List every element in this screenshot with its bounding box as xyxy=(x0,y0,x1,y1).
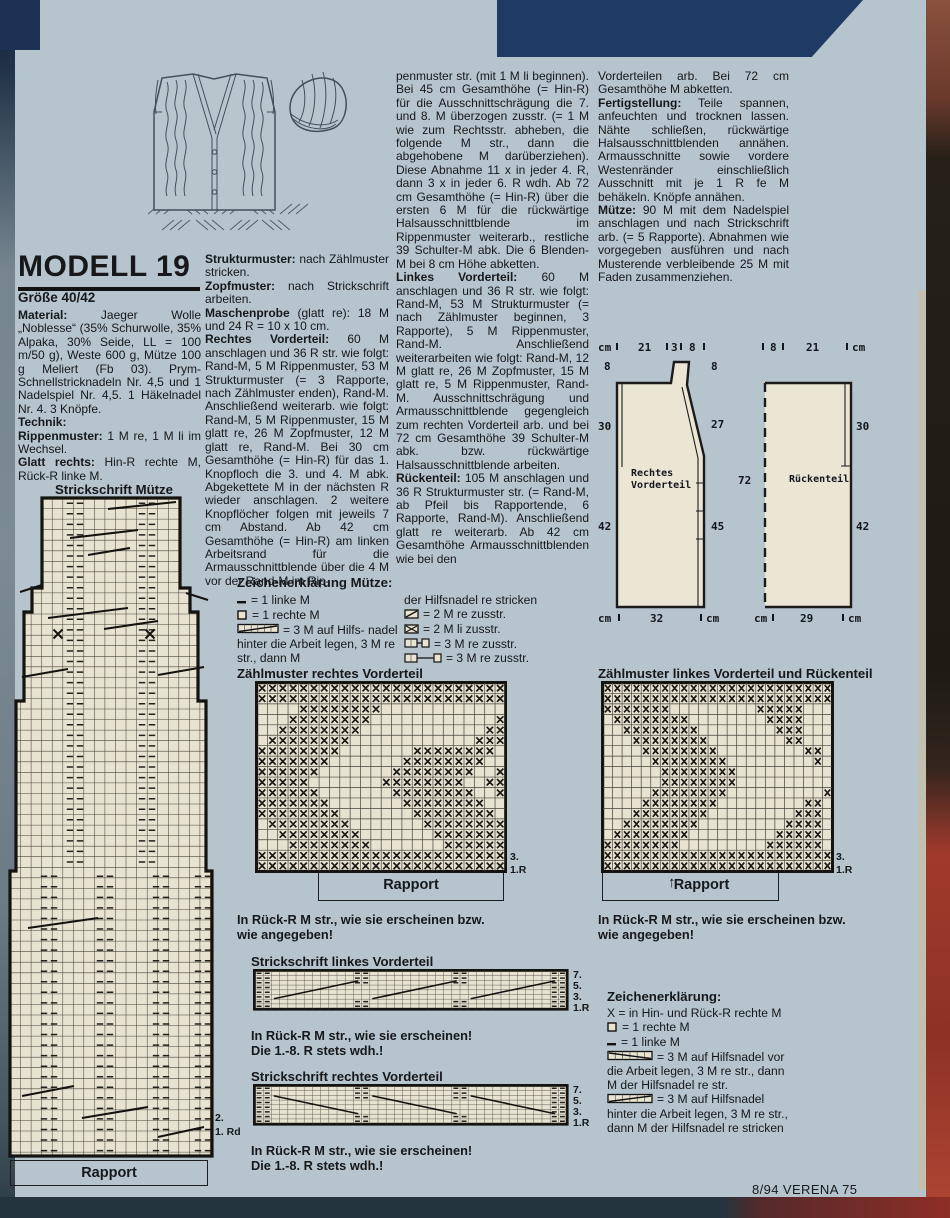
paragraph: Mütze: 90 M mit dem Nadelspiel anschlage… xyxy=(598,204,789,284)
measure-label: 8 xyxy=(604,360,611,373)
measure-label: 45 xyxy=(711,520,724,533)
measure-label: 8 xyxy=(711,360,718,373)
tick-mark xyxy=(762,343,764,350)
chart-note: wie angegeben! xyxy=(598,927,694,942)
tick-mark xyxy=(782,343,784,350)
measure-label: 8 xyxy=(689,341,696,354)
measure-label: cm xyxy=(598,612,611,625)
legend-item: = 1 rechte M xyxy=(237,608,400,623)
muetze-rapport-box: Rapport xyxy=(10,1160,208,1186)
p2tog-icon xyxy=(404,623,419,637)
measure-label: 42 xyxy=(598,520,611,533)
piece-name-rueckenteil: Rückenteil xyxy=(789,474,849,486)
measure-label: 42 xyxy=(856,520,869,533)
strickschrift-rechts-chart xyxy=(253,1084,569,1131)
k2tog-icon xyxy=(404,608,419,622)
muetze-chart-title: Strickschrift Mütze xyxy=(8,482,220,497)
measure-label: 29 xyxy=(800,612,813,625)
paragraph: Technik: xyxy=(18,416,201,429)
legend-item: = 3 M auf Hilfs- nadel hinter die Arbeit… xyxy=(237,623,400,666)
tick-mark xyxy=(616,343,618,350)
column-instructions-2: penmuster str. (mit 1 M li beginnen). Be… xyxy=(396,70,589,566)
strickschrift-links-title: Strickschrift linkes Vorderteil xyxy=(251,954,433,969)
measure-label: cm xyxy=(706,612,719,625)
chart-note: Die 1.-8. R stets wdh.! xyxy=(251,1043,383,1058)
zaehlmuster-rechts-title: Zählmuster rechtes Vorderteil xyxy=(237,666,423,681)
tick-mark xyxy=(618,614,620,621)
cap-illustration xyxy=(290,72,346,131)
zaehlmuster-rechts-chart xyxy=(255,681,507,878)
legend-main: Zeichenerklärung: X = in Hin- und Rück-R… xyxy=(607,990,791,1135)
column-materials: Material: Jaeger Wolle „Noblesse“ (35% S… xyxy=(18,309,201,483)
chart-note: In Rück-R M str., wie sie erscheinen! xyxy=(251,1143,472,1158)
zaehlmuster-links-chart xyxy=(601,681,834,878)
measure-label: cm xyxy=(852,341,865,354)
legend-muetze-col-a: = 1 linke M = 1 rechte M = 3 M auf Hilfs… xyxy=(237,593,400,665)
tick-mark xyxy=(680,343,682,350)
top-left-corner-band xyxy=(0,0,40,50)
chart-note: In Rück-R M str., wie sie erscheinen! xyxy=(251,1028,472,1043)
page-crease xyxy=(918,290,926,1190)
legend-item: X = in Hin- und Rück-R rechte M xyxy=(607,1006,791,1020)
measure-label: 21 xyxy=(638,341,651,354)
chart-note: Die 1.-8. R stets wdh.! xyxy=(251,1158,383,1173)
legend-item: = 3 M re zusstr. xyxy=(404,637,592,652)
legend-item: = 1 linke M xyxy=(607,1035,791,1050)
measure-label: 72 xyxy=(738,474,751,487)
issue-page-footer: 8/94 VERENA 75 xyxy=(752,1182,857,1197)
paragraph: Zopfmuster: nach Strickschrift arbeiten. xyxy=(205,280,389,307)
muetze-knitting-chart xyxy=(8,496,222,1165)
paragraph: Linkes Vorderteil: 60 M anschlagen und 3… xyxy=(396,271,589,472)
chart-note: wie angegeben! xyxy=(237,927,333,942)
rapport-start-arrow-icon: ↑ xyxy=(668,874,676,891)
legend-item: = 2 M li zusstr. xyxy=(404,622,592,637)
tick-mark xyxy=(700,614,702,621)
tick-mark xyxy=(772,614,774,621)
cable-back-icon xyxy=(607,1093,653,1107)
column-instructions-3: Vorderteilen arb. Bei 72 cm Gesamthöhe M… xyxy=(598,70,789,285)
k3tog-icon xyxy=(404,637,430,651)
measure-label: 21 xyxy=(806,341,819,354)
legend-item: der Hilfsnadel re stricken xyxy=(404,593,592,607)
measure-label: 8 xyxy=(770,341,777,354)
paragraph: Rückenteil: 105 M anschlagen und 36 R St… xyxy=(396,472,589,566)
purl-stitch-icon xyxy=(607,1036,617,1050)
piece-name-rechtes-vorderteil: Rechtes Vorderteil xyxy=(631,468,691,492)
legend-muetze-col-b: der Hilfsnadel re stricken = 2 M re zuss… xyxy=(404,593,592,666)
cable-back-icon xyxy=(237,623,279,637)
cable-front-icon xyxy=(607,1050,653,1064)
paragraph: Rippenmuster: 1 M re, 1 M li im Wechsel. xyxy=(18,430,201,457)
row-label: 3. xyxy=(836,851,845,863)
measure-label: 30 xyxy=(856,420,869,433)
measure-label: cm xyxy=(754,612,767,625)
row-label: 1.R xyxy=(573,1002,589,1014)
paragraph: penmuster str. (mit 1 M li beginnen). Be… xyxy=(396,70,589,271)
strickschrift-links-chart xyxy=(253,969,569,1016)
row-label: 1.R xyxy=(510,864,526,876)
legend-item: = 3 M auf Hilfsnadel hinter die Arbeit l… xyxy=(607,1092,791,1135)
page-bottom-edge xyxy=(0,1197,950,1218)
legend-item: = 3 M auf Hilfsnadel vor die Arbeit lege… xyxy=(607,1050,791,1093)
paragraph: Glatt rechts: Hin-R rechte M, Rück-R lin… xyxy=(18,456,201,483)
rapport-bracket: Rapport xyxy=(602,873,779,901)
row-label: 1.R xyxy=(573,1117,589,1129)
measure-label: cm xyxy=(848,612,861,625)
strickschrift-rechts-title: Strickschrift rechtes Vorderteil xyxy=(251,1069,443,1084)
purl-stitch-icon xyxy=(237,594,247,608)
muetze-row-label: 2. xyxy=(215,1112,224,1124)
measure-label: cm xyxy=(598,341,611,354)
paragraph: Strukturmuster: nach Zählmuster stricken… xyxy=(205,253,389,280)
legend-item: = 3 M re zusstr. xyxy=(404,651,592,666)
legend-item: = 1 linke M xyxy=(237,593,400,608)
paragraph: Maschenprobe (glatt re): 18 M und 24 R =… xyxy=(205,307,389,334)
tick-mark xyxy=(842,614,844,621)
paragraph: Vorderteilen arb. Bei 72 cm Gesamthöhe M… xyxy=(598,70,789,97)
knit-stitch-icon xyxy=(237,609,248,623)
knit-stitch-icon xyxy=(607,1021,618,1035)
measure-label: 27 xyxy=(711,418,724,431)
size-label: Größe 40/42 xyxy=(18,290,95,305)
measure-label: 32 xyxy=(650,612,663,625)
legend-muetze: Zeichenerklärung Mütze: xyxy=(237,576,589,592)
chart-note: In Rück-R M str., wie sie erscheinen bzw… xyxy=(598,912,846,927)
muetze-row-label: 1. Rd xyxy=(215,1126,241,1138)
page-right-edge xyxy=(926,0,950,1218)
measure-label: 3 xyxy=(671,341,678,354)
paragraph: Material: Jaeger Wolle „Noblesse“ (35% S… xyxy=(18,309,201,416)
measure-label: 30 xyxy=(598,420,611,433)
page-title: MODELL 19 xyxy=(18,250,200,291)
top-navy-banner xyxy=(497,0,863,57)
paragraph: Rechtes Vorderteil: 60 M anschlagen und … xyxy=(205,333,389,588)
magazine-page: MODELL 19 Größe 40/42 Material: Jaeger W… xyxy=(0,0,950,1218)
row-label: 3. xyxy=(510,851,519,863)
tick-mark xyxy=(703,343,705,350)
row-label: 1.R xyxy=(836,864,852,876)
k3tog-wide-icon xyxy=(404,652,442,666)
vest-and-cap-illustration xyxy=(118,62,356,244)
legend-item: = 2 M re zusstr. xyxy=(404,607,592,622)
legend-item: = 1 rechte M xyxy=(607,1020,791,1035)
chart-note: In Rück-R M str., wie sie erscheinen bzw… xyxy=(237,912,485,927)
zaehlmuster-links-title: Zählmuster linkes Vorderteil und Rückent… xyxy=(598,666,873,681)
tick-mark xyxy=(846,343,848,350)
rapport-bracket: Rapport xyxy=(318,873,504,901)
legend-main-title: Zeichenerklärung: xyxy=(607,990,791,1004)
legend-muetze-title: Zeichenerklärung Mütze: xyxy=(237,576,589,590)
column-instructions-1: Strukturmuster: nach Zählmuster stricken… xyxy=(205,253,389,588)
tick-mark xyxy=(666,343,668,350)
paragraph: Fertigstellung: Teile spannen, anfeuchte… xyxy=(598,97,789,204)
